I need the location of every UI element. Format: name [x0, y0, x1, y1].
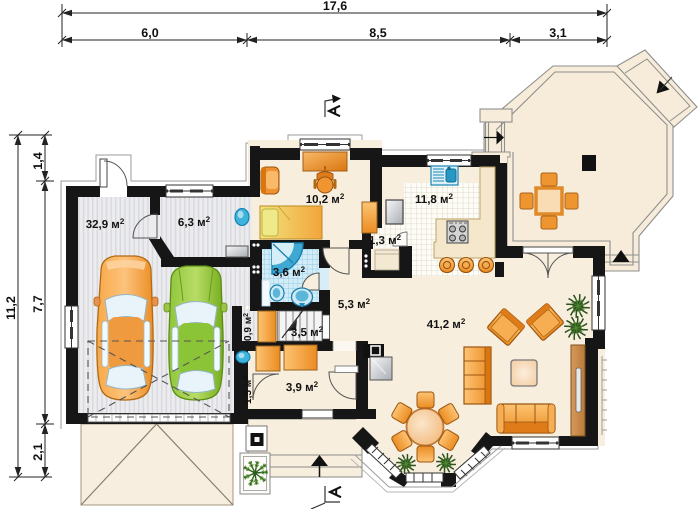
svg-text:6,0: 6,0 — [141, 26, 158, 40]
svg-text:8,5: 8,5 — [369, 26, 386, 40]
svg-text:17,6: 17,6 — [323, 0, 347, 13]
svg-text:41,2 м2: 41,2 м2 — [427, 317, 466, 331]
svg-text:1,5 м2: 1,5 м2 — [243, 376, 254, 404]
svg-text:10,2 м2: 10,2 м2 — [306, 192, 345, 206]
svg-text:3,1: 3,1 — [549, 26, 566, 40]
svg-text:7,7: 7,7 — [31, 295, 45, 312]
svg-text:11,2: 11,2 — [4, 296, 18, 320]
svg-text:32,9 м2: 32,9 м2 — [86, 217, 125, 231]
svg-text:2,1: 2,1 — [31, 443, 45, 460]
svg-text:1,4: 1,4 — [31, 152, 45, 169]
svg-text:11,8 м2: 11,8 м2 — [415, 192, 453, 206]
svg-text:0,9 м2: 0,9 м2 — [243, 313, 254, 341]
